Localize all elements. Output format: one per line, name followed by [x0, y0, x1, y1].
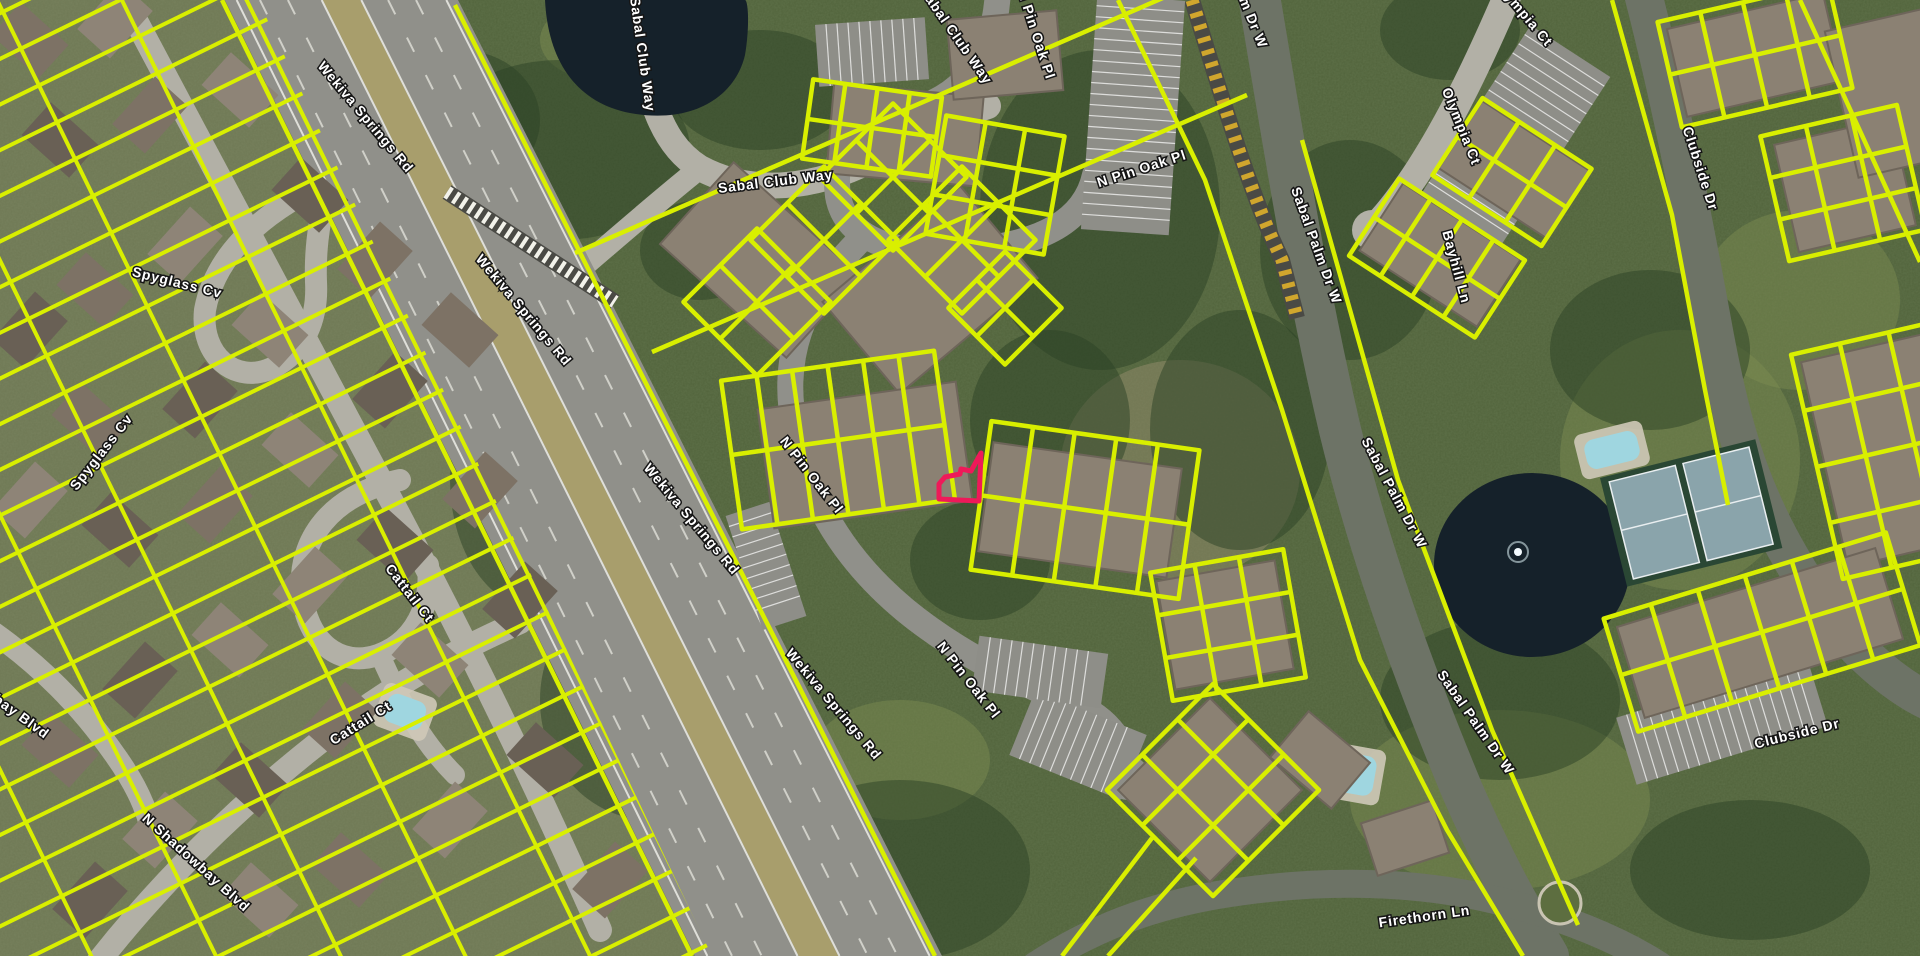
condo-roof — [1156, 560, 1293, 689]
parking-lot — [815, 17, 929, 87]
satellite-map[interactable]: Wekiva Springs RdWekiva Springs RdWekiva… — [0, 0, 1920, 956]
satellite-map-viewport[interactable]: Wekiva Springs RdWekiva Springs RdWekiva… — [0, 0, 1920, 956]
pond — [1434, 473, 1630, 657]
fountain-icon — [1514, 548, 1522, 556]
